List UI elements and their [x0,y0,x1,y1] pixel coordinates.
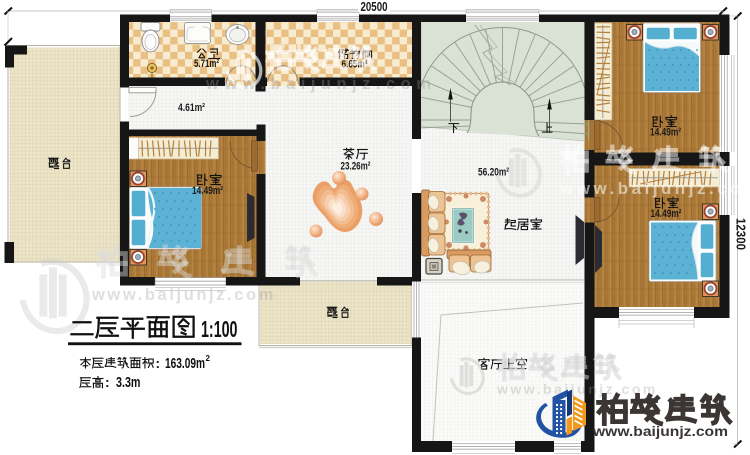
svg-text:www.baijunjz.com: www.baijunjz.com [496,381,658,397]
svg-text:www.baijunjz.com: www.baijunjz.com [205,75,436,93]
svg-text:4.61m²: 4.61m² [178,102,205,114]
svg-text:www.baijunjz.com: www.baijunjz.com [559,179,750,198]
svg-text:5.71m²: 5.71m² [194,58,219,70]
svg-text:14.49m²: 14.49m² [192,185,223,197]
svg-text:20500: 20500 [361,0,388,14]
svg-text:56.20m²: 56.20m² [478,167,509,179]
svg-text:www.baijunjz.com: www.baijunjz.com [91,286,276,304]
svg-text:www.baijunjz.com: www.baijunjz.com [592,423,728,439]
svg-text:163.09m: 163.09m [165,356,205,372]
svg-text:3.3m: 3.3m [116,375,141,391]
svg-text::: : [156,356,161,371]
svg-text:2: 2 [206,354,211,363]
svg-text::: : [105,375,110,390]
svg-text:14.49m²: 14.49m² [650,127,681,139]
svg-text:23.26m²: 23.26m² [341,161,371,173]
svg-text:12300: 12300 [734,218,749,250]
svg-text:1:100: 1:100 [201,316,238,342]
svg-text:14.49m²: 14.49m² [651,208,682,220]
